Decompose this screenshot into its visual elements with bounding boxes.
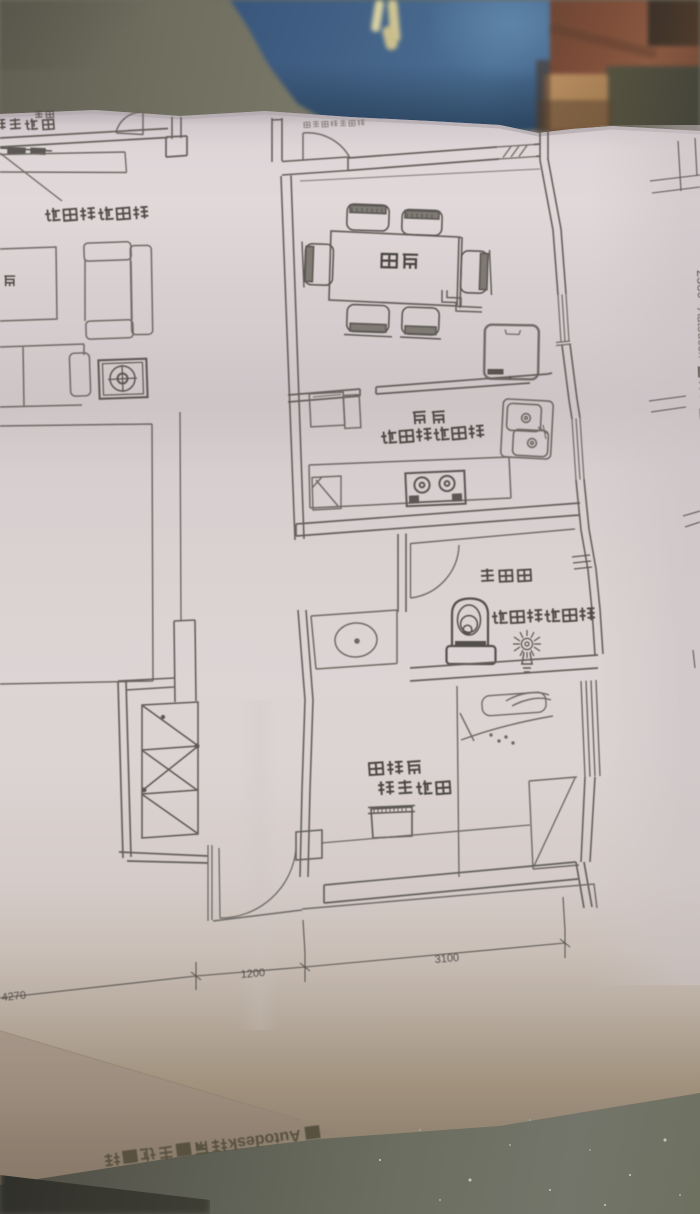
svg-text:2580: 2580 xyxy=(694,270,700,299)
svg-text:4270: 4270 xyxy=(1,989,27,1003)
svg-text:1200: 1200 xyxy=(240,967,265,981)
svg-text:3100: 3100 xyxy=(434,952,459,966)
svg-text:-Autodesk: -Autodesk xyxy=(694,304,700,359)
svg-text:Autodesk: Autodesk xyxy=(227,1126,302,1152)
